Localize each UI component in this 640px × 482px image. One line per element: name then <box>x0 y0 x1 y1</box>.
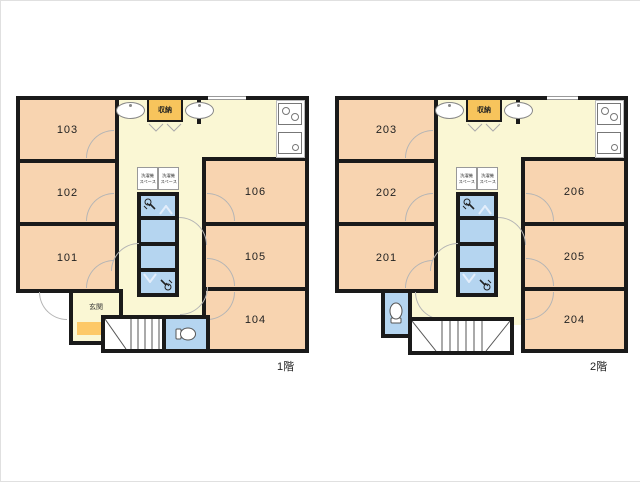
washbasin-icon <box>435 102 464 119</box>
wall <box>624 96 628 162</box>
window-icon <box>208 96 246 100</box>
bifold-door-icon <box>466 123 502 133</box>
room-label: 106 <box>245 186 266 198</box>
storage-cabinet: 収納 <box>466 98 502 122</box>
room-206: 206 <box>521 157 628 226</box>
door-arc-icon <box>405 130 433 158</box>
room-label: 105 <box>245 251 266 263</box>
room-label: 101 <box>57 252 78 264</box>
room-102: 102 <box>16 159 119 226</box>
room-205: 205 <box>521 222 628 291</box>
laundry-space-label: 洗濯機 <box>460 173 473 178</box>
laundry-space-label: スペース <box>479 179 495 184</box>
door-arc-icon <box>207 193 235 221</box>
room-label: 204 <box>564 314 585 326</box>
room-204: 204 <box>521 287 628 353</box>
kitchen-sink-icon <box>278 132 302 154</box>
bifold-door-icon <box>147 123 183 133</box>
room-203: 203 <box>335 96 438 163</box>
room-label: 102 <box>57 187 78 199</box>
door-arc-icon <box>207 292 235 320</box>
room-103: 103 <box>16 96 119 163</box>
laundry-space-label: 洗濯機 <box>141 173 154 178</box>
folding-door-icon <box>159 205 173 215</box>
door-arc-icon <box>526 193 554 221</box>
staircase <box>408 317 514 355</box>
door-arc-icon <box>86 193 114 221</box>
washbasin-icon <box>185 102 214 119</box>
laundry-space: 洗濯機 スペース <box>477 167 498 190</box>
kitchen-sink-icon <box>597 132 621 154</box>
folding-door-icon <box>478 205 492 215</box>
floor-label: 2階 <box>590 358 607 374</box>
room-label: 201 <box>376 252 397 264</box>
room-label: 103 <box>57 124 78 136</box>
room-202: 202 <box>335 159 438 226</box>
room-101: 101 <box>16 222 119 293</box>
door-arc-icon <box>405 193 433 221</box>
room-label: 202 <box>376 187 397 199</box>
door-arc-icon <box>39 292 67 320</box>
toilet-icon <box>386 302 406 326</box>
toilet-room <box>162 315 210 353</box>
folding-door-icon <box>143 273 157 283</box>
laundry-space-label: 洗濯機 <box>162 173 175 178</box>
genkan-label: 玄関 <box>73 302 119 312</box>
shower-icon <box>155 274 173 292</box>
shower-icon <box>474 274 492 292</box>
laundry-space: 洗濯機 スペース <box>158 167 179 190</box>
washbasin-icon <box>504 102 533 119</box>
wall <box>305 96 309 162</box>
window-icon <box>547 96 578 100</box>
stairs-icon <box>105 319 162 349</box>
door-arc-icon <box>86 130 114 158</box>
laundry-space-label: スペース <box>160 179 176 184</box>
stove-icon <box>597 103 621 125</box>
toilet-icon <box>174 324 196 344</box>
laundry-space: 洗濯機 スペース <box>456 167 477 190</box>
room-104: 104 <box>202 287 309 353</box>
stairs-icon <box>412 321 510 351</box>
door-arc-icon <box>526 258 554 286</box>
room-label: 205 <box>564 251 585 263</box>
room-label: 203 <box>376 124 397 136</box>
laundry-space-label: スペース <box>458 179 474 184</box>
floor-plan-2f: 203 202 201 206 205 204 収納 <box>335 96 631 364</box>
door-arc-icon <box>405 260 433 288</box>
washbasin-icon <box>116 102 145 119</box>
room-201: 201 <box>335 222 438 293</box>
room-105: 105 <box>202 222 309 291</box>
room-106: 106 <box>202 157 309 226</box>
shower-unit <box>456 268 498 297</box>
floor-label: 1階 <box>277 358 294 374</box>
laundry-space: 洗濯機 スペース <box>137 167 158 190</box>
door-arc-icon <box>207 258 235 286</box>
floor-plan-page: 103 102 101 106 105 104 収納 <box>0 0 640 482</box>
stove-icon <box>278 103 302 125</box>
storage-label: 収納 <box>477 105 491 115</box>
door-arc-icon <box>86 260 114 288</box>
shower-unit <box>137 268 179 297</box>
laundry-space-label: スペース <box>139 179 155 184</box>
room-label: 206 <box>564 186 585 198</box>
staircase <box>101 315 166 353</box>
folding-door-icon <box>462 273 476 283</box>
storage-cabinet: 収納 <box>147 98 183 122</box>
door-arc-icon <box>526 292 554 320</box>
storage-label: 収納 <box>158 105 172 115</box>
room-label: 104 <box>245 314 266 326</box>
laundry-space-label: 洗濯機 <box>481 173 494 178</box>
floor-plan-1f: 103 102 101 106 105 104 収納 <box>16 96 312 364</box>
